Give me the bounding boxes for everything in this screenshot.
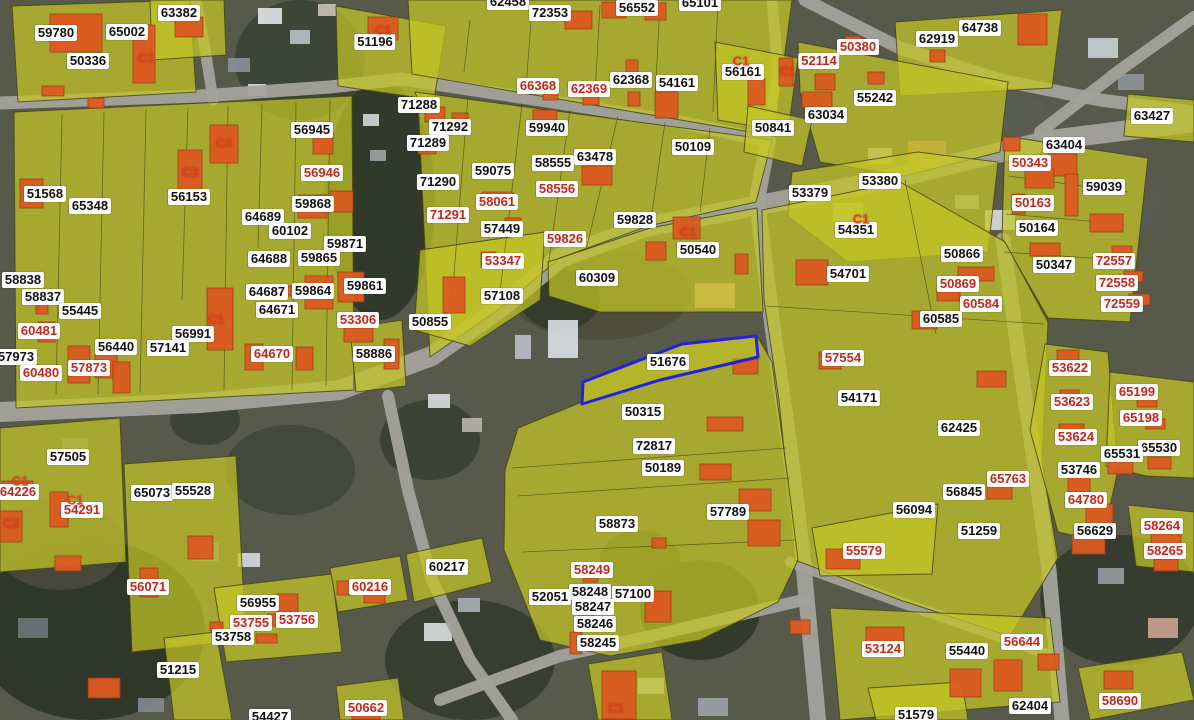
parcel-label-58247[interactable]: 58247 (572, 599, 614, 615)
building-label-C1: C1 (375, 23, 392, 38)
parcel-label-53623[interactable]: 53623 (1051, 394, 1093, 410)
parcel-label-50347[interactable]: 50347 (1033, 257, 1075, 273)
parcel-label-62458[interactable]: 62458 (487, 0, 529, 10)
parcel-label-72557[interactable]: 72557 (1093, 253, 1135, 269)
parcel-label-56094[interactable]: 56094 (893, 502, 935, 518)
parcel-label-64687[interactable]: 64687 (246, 284, 288, 300)
parcel-label-53756[interactable]: 53756 (276, 612, 318, 628)
parcel-label-53624[interactable]: 53624 (1055, 429, 1097, 445)
parcel-label-50164[interactable]: 50164 (1016, 220, 1058, 236)
parcel-label-57449[interactable]: 57449 (481, 221, 523, 237)
parcel-label-71289[interactable]: 71289 (407, 135, 449, 151)
building-label-C1: C1 (680, 225, 697, 240)
parcel-label-58837[interactable]: 58837 (22, 289, 64, 305)
parcel-label-65531[interactable]: 65531 (1101, 446, 1143, 462)
parcel-label-65073[interactable]: 65073 (131, 485, 173, 501)
parcel-label-66368[interactable]: 66368 (517, 78, 559, 94)
parcel-labels-layer: 6245872353565526510163382597806500251196… (0, 0, 1194, 720)
building-label-C1: C1 (853, 212, 870, 227)
parcel-label-58838[interactable]: 58838 (2, 272, 44, 288)
building-label-C2: C2 (3, 516, 20, 531)
parcel-label-53746[interactable]: 53746 (1058, 462, 1100, 478)
parcel-label-56552[interactable]: 56552 (616, 0, 658, 16)
parcel-label-60309[interactable]: 60309 (576, 270, 618, 286)
parcel-label-62404[interactable]: 62404 (1009, 698, 1051, 714)
parcel-label-56955[interactable]: 56955 (237, 595, 279, 611)
parcel-label-50662[interactable]: 50662 (345, 700, 387, 716)
parcel-label-64671[interactable]: 64671 (256, 302, 298, 318)
parcel-label-53347[interactable]: 53347 (482, 253, 524, 269)
parcel-label-50380[interactable]: 50380 (837, 39, 879, 55)
building-label-C1: C1 (733, 54, 750, 69)
parcel-label-50869[interactable]: 50869 (937, 276, 979, 292)
parcel-label-53380[interactable]: 53380 (859, 173, 901, 189)
parcel-label-58555[interactable]: 58555 (532, 155, 574, 171)
parcel-label-62919[interactable]: 62919 (916, 31, 958, 47)
parcel-label-72817[interactable]: 72817 (633, 438, 675, 454)
parcel-label-59861[interactable]: 59861 (344, 278, 386, 294)
parcel-label-57973[interactable]: 57973 (0, 349, 37, 365)
parcel-label-51568[interactable]: 51568 (24, 186, 66, 202)
parcel-label-65101[interactable]: 65101 (679, 0, 721, 11)
parcel-label-55242[interactable]: 55242 (854, 90, 896, 106)
parcel-label-55528[interactable]: 55528 (172, 483, 214, 499)
parcel-label-51259[interactable]: 51259 (958, 523, 1000, 539)
parcel-label-58246[interactable]: 58246 (574, 616, 616, 632)
parcel-label-59828[interactable]: 59828 (614, 212, 656, 228)
parcel-label-60217[interactable]: 60217 (426, 559, 468, 575)
parcel-label-64780[interactable]: 64780 (1065, 492, 1107, 508)
building-label-C1: C1 (138, 51, 155, 66)
parcel-label-53758[interactable]: 53758 (212, 629, 254, 645)
parcel-label-58265[interactable]: 58265 (1144, 543, 1186, 559)
parcel-label-65530[interactable]: 65530 (1138, 440, 1180, 456)
parcel-label-50540[interactable]: 50540 (677, 242, 719, 258)
parcel-label-56629[interactable]: 56629 (1074, 523, 1116, 539)
parcel-label-65199[interactable]: 65199 (1116, 384, 1158, 400)
parcel-label-58886[interactable]: 58886 (353, 346, 395, 362)
parcel-label-57141[interactable]: 57141 (147, 340, 189, 356)
parcel-label-63382[interactable]: 63382 (158, 5, 200, 21)
parcel-label-55579[interactable]: 55579 (843, 543, 885, 559)
parcel-label-59865[interactable]: 59865 (298, 250, 340, 266)
parcel-label-58245[interactable]: 58245 (577, 635, 619, 651)
parcel-label-50855[interactable]: 50855 (409, 314, 451, 330)
parcel-label-51676[interactable]: 51676 (647, 354, 689, 370)
parcel-label-56071[interactable]: 56071 (127, 579, 169, 595)
parcel-label-63478[interactable]: 63478 (574, 149, 616, 165)
parcel-label-51215[interactable]: 51215 (157, 662, 199, 678)
map-canvas[interactable]: 6245872353565526510163382597806500251196… (0, 0, 1194, 720)
building-label-C1: C1 (67, 493, 84, 508)
parcel-label-57505[interactable]: 57505 (47, 449, 89, 465)
parcel-label-51579[interactable]: 51579 (895, 707, 937, 720)
parcel-label-72558[interactable]: 72558 (1096, 275, 1138, 291)
parcel-label-59075[interactable]: 59075 (472, 163, 514, 179)
building-label-C1: C1 (608, 701, 625, 716)
parcel-label-58061[interactable]: 58061 (476, 194, 518, 210)
parcel-label-52114[interactable]: 52114 (798, 53, 839, 69)
building-label-C1: C1 (208, 312, 225, 327)
parcel-label-56945[interactable]: 56945 (291, 122, 333, 138)
parcel-label-56644[interactable]: 56644 (1001, 634, 1043, 650)
parcel-label-56845[interactable]: 56845 (943, 484, 985, 500)
parcel-label-54161[interactable]: 54161 (656, 75, 698, 91)
parcel-label-71290[interactable]: 71290 (417, 174, 459, 190)
parcel-label-57100[interactable]: 57100 (612, 586, 654, 602)
parcel-label-58249[interactable]: 58249 (571, 562, 613, 578)
parcel-label-64688[interactable]: 64688 (248, 251, 290, 267)
parcel-label-60480[interactable]: 60480 (20, 365, 62, 381)
building-label-C3: C3 (182, 165, 199, 180)
parcel-label-56440[interactable]: 56440 (95, 339, 137, 355)
parcel-label-50163[interactable]: 50163 (1012, 195, 1054, 211)
parcel-label-58873[interactable]: 58873 (596, 516, 638, 532)
parcel-label-52051[interactable]: 52051 (529, 589, 571, 605)
parcel-label-71288[interactable]: 71288 (398, 97, 440, 113)
parcel-label-59780[interactable]: 59780 (35, 25, 77, 41)
parcel-label-53306[interactable]: 53306 (337, 312, 379, 328)
parcel-label-62369[interactable]: 62369 (568, 81, 610, 97)
parcel-label-60585[interactable]: 60585 (920, 311, 962, 327)
parcel-label-60216[interactable]: 60216 (349, 579, 391, 595)
parcel-label-59864[interactable]: 59864 (292, 283, 334, 299)
building-label-C4: C4 (216, 136, 233, 151)
parcel-label-55445[interactable]: 55445 (59, 303, 101, 319)
parcel-label-71292[interactable]: 71292 (429, 119, 471, 135)
parcel-label-64738[interactable]: 64738 (959, 20, 1001, 36)
parcel-label-57554[interactable]: 57554 (822, 350, 864, 366)
parcel-label-53622[interactable]: 53622 (1049, 360, 1091, 376)
parcel-label-55440[interactable]: 55440 (946, 643, 988, 659)
parcel-label-72353[interactable]: 72353 (529, 5, 571, 21)
parcel-label-56153[interactable]: 56153 (168, 189, 210, 205)
parcel-label-50315[interactable]: 50315 (622, 404, 664, 420)
parcel-label-60102[interactable]: 60102 (269, 223, 311, 239)
parcel-label-59868[interactable]: 59868 (292, 196, 334, 212)
parcel-label-53379[interactable]: 53379 (789, 185, 831, 201)
parcel-label-72559[interactable]: 72559 (1101, 296, 1143, 312)
parcel-label-63034[interactable]: 63034 (805, 107, 847, 123)
parcel-label-59039[interactable]: 59039 (1083, 179, 1125, 195)
parcel-label-57789[interactable]: 57789 (707, 504, 749, 520)
parcel-label-65198[interactable]: 65198 (1120, 410, 1162, 426)
building-label-C1: C1 (780, 64, 797, 79)
parcel-label-57873[interactable]: 57873 (68, 360, 110, 376)
parcel-label-65002[interactable]: 65002 (106, 24, 148, 40)
parcel-label-62368[interactable]: 62368 (610, 72, 652, 88)
parcel-label-54701[interactable]: 54701 (827, 266, 869, 282)
parcel-label-71291[interactable]: 71291 (427, 207, 469, 223)
parcel-label-60584[interactable]: 60584 (960, 296, 1002, 312)
parcel-label-54171[interactable]: 54171 (838, 390, 880, 406)
parcel-label-50841[interactable]: 50841 (752, 120, 794, 136)
parcel-label-54427[interactable]: 54427 (249, 709, 291, 720)
parcel-label-65763[interactable]: 65763 (987, 471, 1029, 487)
parcel-label-53124[interactable]: 53124 (862, 641, 904, 657)
parcel-label-50336[interactable]: 50336 (67, 53, 109, 69)
building-label-C1: C1 (12, 474, 29, 489)
parcel-label-64670[interactable]: 64670 (251, 346, 293, 362)
parcel-label-65348[interactable]: 65348 (69, 198, 111, 214)
parcel-label-58690[interactable]: 58690 (1099, 693, 1141, 709)
parcel-label-58264[interactable]: 58264 (1141, 518, 1183, 534)
parcel-label-58248[interactable]: 58248 (569, 584, 611, 600)
parcel-label-60481[interactable]: 60481 (18, 323, 60, 339)
parcel-label-59826[interactable]: 59826 (544, 231, 586, 247)
parcel-label-50109[interactable]: 50109 (672, 139, 714, 155)
parcel-label-62425[interactable]: 62425 (938, 420, 980, 436)
parcel-label-63404[interactable]: 63404 (1043, 137, 1085, 153)
parcel-label-50866[interactable]: 50866 (941, 246, 983, 262)
parcel-label-59940[interactable]: 59940 (526, 120, 568, 136)
parcel-label-56946[interactable]: 56946 (301, 165, 343, 181)
parcel-label-50189[interactable]: 50189 (642, 460, 684, 476)
parcel-label-63427[interactable]: 63427 (1131, 108, 1173, 124)
parcel-label-58556[interactable]: 58556 (536, 181, 578, 197)
parcel-label-50343[interactable]: 50343 (1009, 155, 1051, 171)
parcel-label-57108[interactable]: 57108 (481, 288, 523, 304)
